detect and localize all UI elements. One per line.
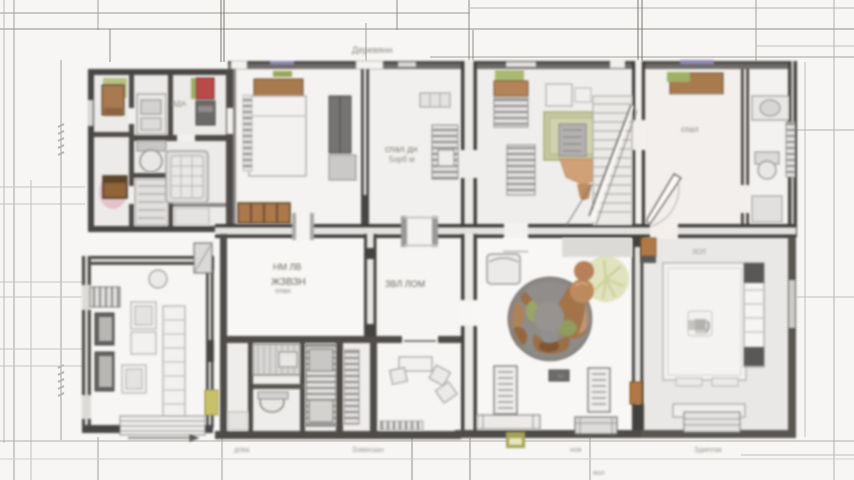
svg-text:Здмплак: Здмплак bbox=[694, 447, 723, 454]
svg-text:от: от bbox=[558, 374, 564, 380]
svg-text:Зовмхצан: Зовмхצан bbox=[352, 447, 384, 454]
svg-text:ЖЗВЗН: ЖЗВЗН bbox=[271, 277, 306, 288]
svg-text:Деревянн: Деревянн bbox=[352, 45, 393, 55]
svg-text:ЗВЛ ЛОМ: ЗВЛ ЛОМ bbox=[385, 279, 425, 289]
svg-text:план: план bbox=[275, 288, 291, 295]
svg-text:нов: нов bbox=[570, 447, 582, 454]
svg-text:спал дн: спал дн bbox=[385, 144, 417, 154]
svg-text:5орб м: 5орб м bbox=[389, 155, 415, 164]
svg-text:спал: спал bbox=[681, 125, 699, 134]
svg-text:НМ ЛВ: НМ ЛВ bbox=[273, 262, 301, 272]
svg-text:ЗОЛ: ЗОЛ bbox=[692, 249, 707, 256]
svg-text:дпва: дпва bbox=[234, 447, 250, 454]
svg-text:вол: вол bbox=[593, 470, 604, 477]
svg-text:ВДА: ВДА bbox=[172, 101, 186, 108]
